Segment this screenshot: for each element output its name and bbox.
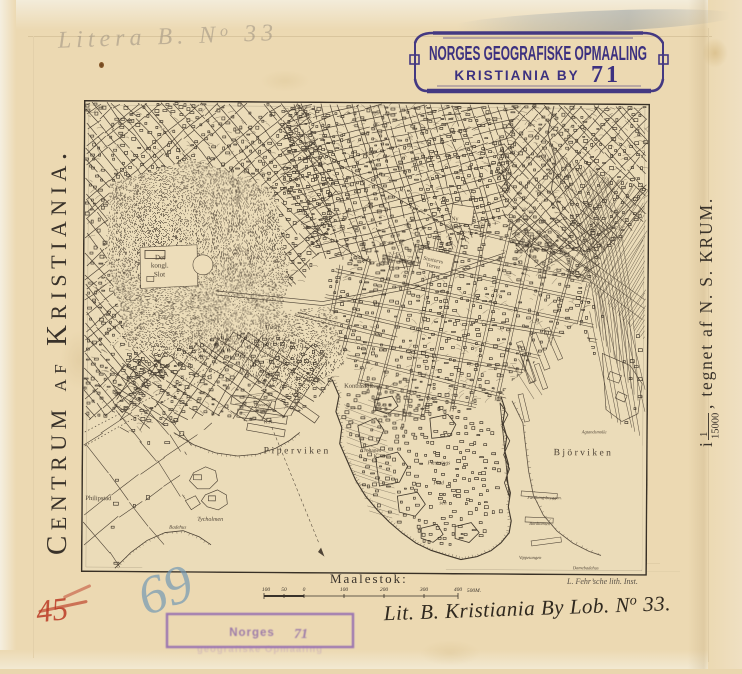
svg-text:i: i [696, 440, 716, 447]
svg-text:Torvet: Torvet [445, 224, 461, 230]
svg-text:100: 100 [262, 587, 270, 593]
svg-text:Damebadehus: Damebadehus [572, 565, 599, 570]
svg-text:200: 200 [380, 587, 389, 593]
svg-text:300: 300 [419, 587, 429, 593]
svg-text:K.: K. [374, 454, 380, 460]
svg-text:50: 50 [281, 587, 287, 593]
svg-text:KRISTIANIA BY: KRISTIANIA BY [454, 68, 579, 83]
svg-text:Badehus: Badehus [169, 526, 186, 531]
svg-text:K.N.: K.N. [264, 420, 274, 425]
svg-text:15000: 15000 [711, 413, 722, 439]
svg-text:Fæstnings: Fæstnings [427, 460, 451, 466]
svg-text:Agtandsmolle: Agtandsmolle [581, 429, 607, 434]
svg-text:100: 100 [340, 587, 349, 593]
svg-text:Philipstad: Philipstad [85, 495, 112, 502]
svg-text:400: 400 [454, 586, 463, 593]
svg-text:Ny: Ny [451, 216, 458, 222]
svg-text:Tivoli: Tivoli [264, 324, 279, 331]
svg-text:500M.: 500M. [467, 588, 481, 594]
svg-text:CENTRUM AF KRISTIANIA.: CENTRUM AF KRISTIANIA. [41, 147, 73, 555]
svg-text:Norges: Norges [229, 627, 275, 639]
svg-text:71: 71 [591, 62, 621, 88]
svg-text:Slot: Slot [154, 270, 165, 278]
svg-text:Tycholmen: Tycholmen [197, 517, 223, 523]
svg-text:0: 0 [303, 587, 306, 593]
svg-text:Det: Det [155, 253, 165, 261]
svg-text:Bordtomten: Bordtomten [529, 521, 551, 526]
svg-text:bryggen: bryggen [256, 407, 272, 412]
svg-text:geografiske Opmaaling: geografiske Opmaaling [197, 644, 323, 655]
svg-text:Vippetangen: Vippetangen [519, 555, 542, 560]
svg-text:Piperviken: Piperviken [264, 446, 331, 456]
svg-text:Fæstningsbryggen.: Fæstningsbryggen. [526, 495, 561, 500]
svg-text:sen: sen [439, 500, 447, 506]
svg-text:kongl.: kongl. [151, 261, 169, 269]
svg-text:, tegnet af N. S. KRUM.: , tegnet af N. S. KRUM. [696, 197, 716, 409]
svg-text:Plad: Plad [432, 480, 444, 486]
svg-text:71: 71 [294, 627, 308, 642]
svg-text:Kontraskjæret: Kontraskjæret [344, 383, 381, 390]
svg-text:Björviken: Björviken [554, 448, 614, 458]
